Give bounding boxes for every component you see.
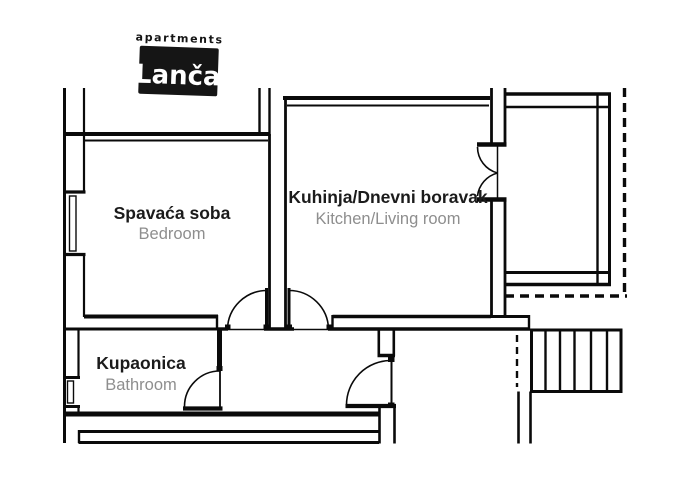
kitchen-living-label-en: Kitchen/Living room (316, 210, 461, 228)
bedroom-label-en: Bedroom (139, 225, 206, 243)
kitchen-living-label-hr: Kuhinja/Dnevni boravak (288, 187, 488, 207)
hallway-top-wall (64, 315, 530, 330)
bedroom-window (63, 192, 86, 255)
bedroom-kitchen-partition (270, 97, 286, 330)
bedroom-label: Spavaća soba Bedroom (114, 203, 231, 243)
kitchen-top-wall (283, 98, 490, 106)
staircase (517, 330, 623, 444)
kitchen-living-label: Kuhinja/Dnevni boravak Kitchen/Living ro… (288, 187, 488, 228)
bathroom-label-hr: Kupaonica (96, 353, 186, 373)
floor-plan-page: apartments Lanča Spavaća soba Bedroom Ku… (0, 0, 700, 500)
bedroom-door (225, 288, 269, 330)
terrace-walls (505, 93, 611, 287)
kitchen-right-wall (492, 88, 506, 317)
bedroom-top-wall (63, 88, 271, 141)
kitchen-door (287, 288, 333, 330)
logo-apartments-text: apartments (135, 31, 223, 47)
entry-door (346, 330, 397, 444)
logo-brand-text: Lanča (135, 60, 222, 93)
bathroom-label-en: Bathroom (105, 376, 177, 394)
logo: apartments Lanča (134, 31, 224, 97)
bottom-outer-wall (63, 414, 379, 443)
bathroom-door (183, 366, 223, 409)
floor-plan-drawing: apartments Lanča Spavaća soba Bedroom Ku… (0, 0, 700, 500)
bathroom-label: Kupaonica Bathroom (96, 353, 186, 394)
bedroom-label-hr: Spavaća soba (114, 203, 231, 223)
